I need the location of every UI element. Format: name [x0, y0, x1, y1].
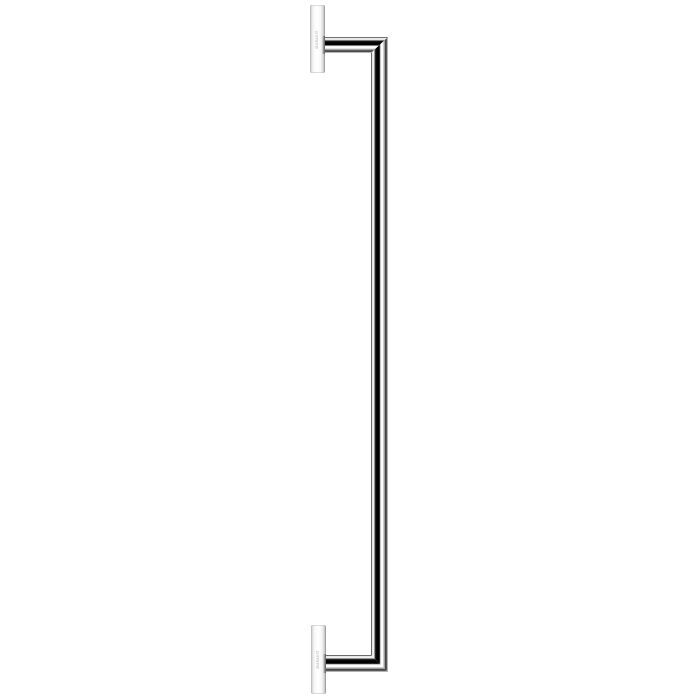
brand-label-bottom: DURAVIT — [317, 650, 321, 668]
mount-joint-shadow-top — [322, 36, 325, 54]
towel-bar-graphic — [0, 0, 700, 700]
product-image-canvas: DURAVIT DURAVIT — [0, 0, 700, 700]
wall-plate-bottom: DURAVIT — [311, 625, 326, 694]
wall-plate-top: DURAVIT — [310, 5, 325, 73]
brand-label-top: DURAVIT — [316, 30, 320, 48]
mount-joint-shadow-bottom — [323, 654, 326, 673]
towel-bar-rail — [371, 37, 388, 672]
